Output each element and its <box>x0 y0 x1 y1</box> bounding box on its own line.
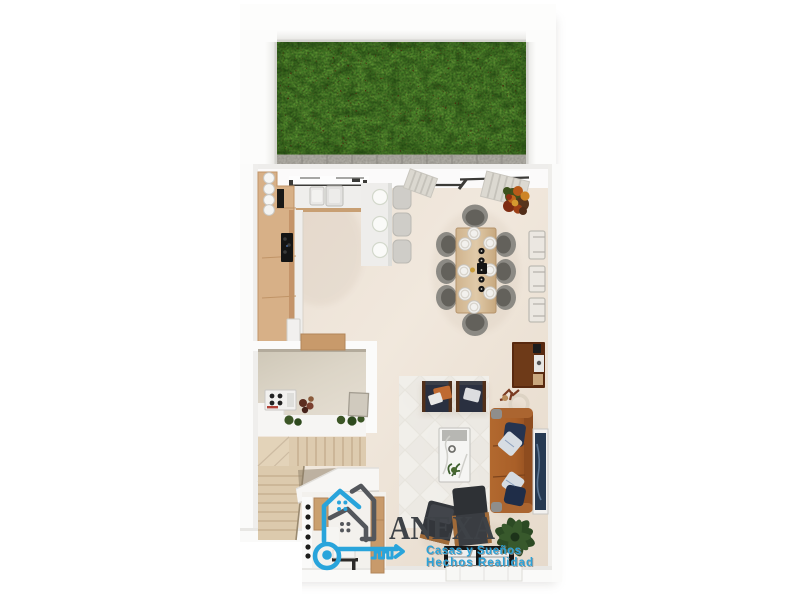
svg-text:Hechos Realidad: Hechos Realidad <box>426 557 533 569</box>
svg-text:ANEXA: ANEXA <box>389 510 495 547</box>
svg-text:Casas y Sueños: Casas y Sueños <box>426 545 521 557</box>
